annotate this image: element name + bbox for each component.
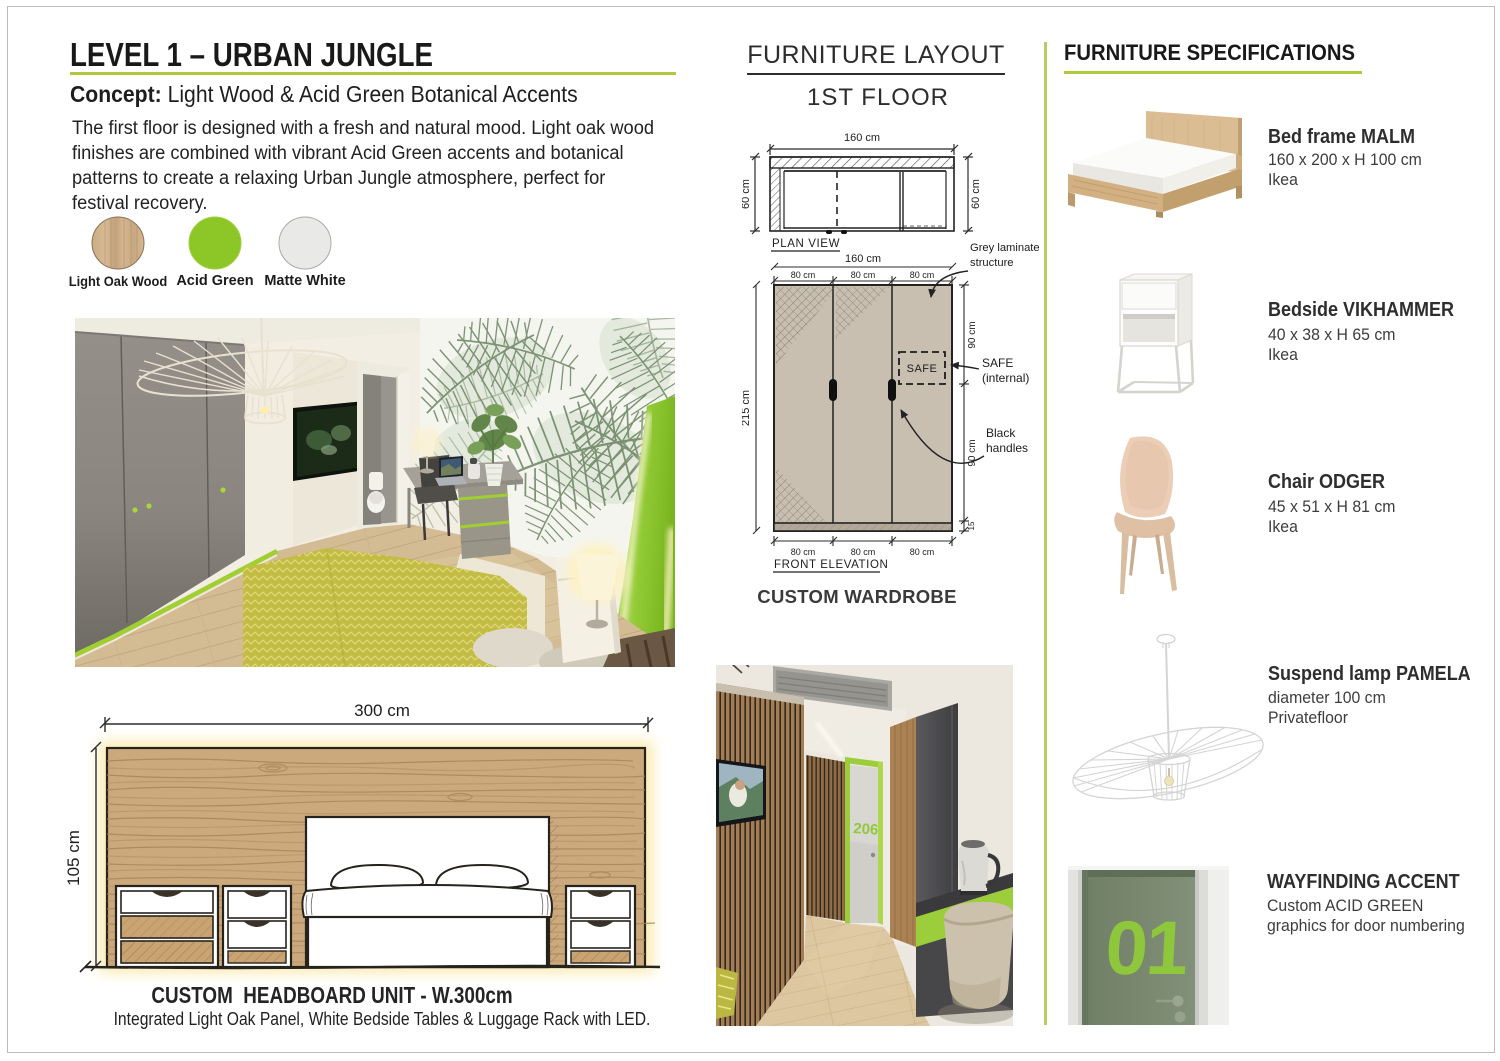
svg-text:215 cm: 215 cm (742, 390, 752, 426)
svg-text:60 cm: 60 cm (970, 179, 982, 209)
svg-text:80 cm: 80 cm (910, 270, 935, 280)
svg-text:(internal): (internal) (982, 371, 1029, 385)
svg-text:80 cm: 80 cm (791, 270, 816, 280)
svg-text:80 cm: 80 cm (910, 547, 935, 557)
svg-text:80 cm: 80 cm (791, 547, 816, 557)
svg-text:160 cm: 160 cm (845, 253, 881, 265)
svg-text:60 cm: 60 cm (742, 179, 752, 209)
svg-text:105 cm: 105 cm (64, 830, 83, 886)
svg-text:80 cm: 80 cm (851, 270, 876, 280)
svg-text:01: 01 (1103, 906, 1189, 991)
svg-text:15: 15 (967, 521, 976, 530)
svg-text:handles: handles (986, 441, 1028, 455)
svg-text:90 cm: 90 cm (967, 321, 978, 348)
svg-text:206: 206 (853, 820, 879, 839)
svg-text:160 cm: 160 cm (844, 132, 880, 144)
svg-text:structure: structure (970, 257, 1014, 269)
svg-text:Grey laminate: Grey laminate (970, 242, 1040, 254)
svg-text:80 cm: 80 cm (851, 547, 876, 557)
svg-text:300 cm: 300 cm (354, 701, 410, 720)
svg-text:Black: Black (986, 426, 1016, 440)
svg-text:SAFE: SAFE (907, 363, 938, 375)
svg-text:FRONT ELEVATION: FRONT ELEVATION (774, 559, 888, 571)
svg-text:SAFE: SAFE (982, 356, 1013, 370)
